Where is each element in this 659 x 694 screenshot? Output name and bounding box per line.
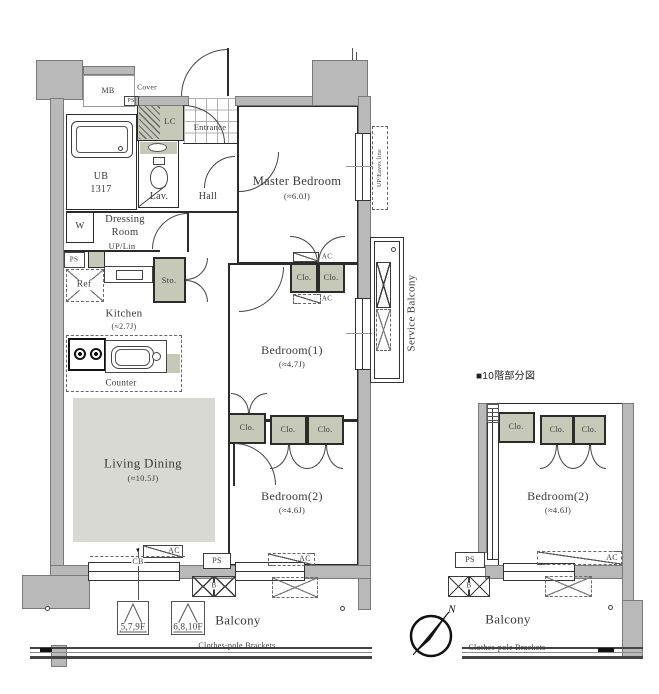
kitchen-label: Kitchen (106, 309, 143, 320)
wall-hall-bottom (66, 211, 238, 213)
partial-bedroom2-label: Bedroom(2) (527, 490, 589, 502)
closet-label: Clo. (582, 426, 597, 434)
closet-label: Clo. (324, 274, 339, 282)
entrance-door-leaf (227, 48, 229, 96)
vanity-counter (104, 266, 153, 283)
closet-label: Clo. (318, 426, 333, 434)
stove-burner (90, 348, 102, 360)
ac-label: AC (606, 554, 618, 562)
eaves-line-label: UP/Eaves line (377, 149, 383, 187)
toilet-tank (153, 157, 165, 165)
cb-marker: ▼ (135, 548, 141, 554)
service-balcony-unit-dashed (376, 309, 391, 351)
washer-label: W (75, 222, 84, 232)
ps-label: PS (212, 557, 222, 565)
window-sill-tick (346, 166, 372, 167)
roof-tick (352, 48, 353, 60)
equipment-space-dashed (272, 577, 318, 598)
service-balcony-label: Service Balcony (407, 275, 418, 352)
closet-label: Clo. (240, 424, 255, 432)
ac-label: AC (168, 547, 180, 555)
balcony-drain (340, 606, 345, 611)
stove (68, 338, 106, 371)
balcony-rail-2 (30, 652, 372, 653)
dressing-door-leaf (187, 213, 189, 249)
ac-box-bedroom1 (293, 294, 321, 304)
kitchen-sink-basin-inner (115, 349, 150, 366)
lav-door-arc (204, 156, 235, 188)
ac-label: AC (299, 555, 311, 563)
rail-tick (40, 648, 52, 652)
ub-label: UB (94, 172, 109, 182)
floor-plan: Cover MB PS LC Entrance UB 1317 Lav. Hal… (0, 0, 659, 694)
meter-box-label: MB (101, 87, 114, 95)
window-sill-tick (346, 333, 372, 334)
wall-top-left-block (36, 60, 83, 100)
refrigerator-label: Ref (76, 280, 93, 290)
pbalcony-rail-2 (462, 652, 643, 653)
pwall-left (478, 403, 487, 553)
wall-mb-top (83, 66, 135, 75)
up-lin-label: UP/Lin (109, 242, 136, 251)
ps-label: PS (465, 556, 475, 564)
wall-left (50, 98, 64, 578)
master-bedroom-label: Master Bedroom (253, 175, 342, 188)
wall-top-b (235, 96, 313, 106)
clothes-pole-label: Clothes-pole Brackets (468, 644, 545, 652)
storage-door-arc (186, 280, 208, 302)
window-bedroom1 (355, 298, 371, 370)
balcony-rail-3 (30, 656, 372, 659)
balcony-drain (608, 605, 613, 610)
rail-tick (598, 648, 614, 652)
clothes-pole-label: Clothes-pole Brackets (198, 642, 275, 650)
flue-label: B (211, 583, 218, 590)
service-balcony-unit (376, 262, 391, 308)
dressing-door-arc (152, 213, 188, 249)
flue-label: B (466, 583, 473, 590)
dressing-room-label: Dressing (105, 215, 145, 226)
storage-door-arc (186, 258, 208, 280)
balcony-drain (45, 606, 50, 611)
kitchen-sink-unit (105, 340, 167, 373)
cb-label: CB (131, 558, 144, 566)
closet-label: Clo. (509, 423, 524, 431)
bedroom1-size: (≈4.7J) (279, 360, 305, 369)
closet-label: Clo. (281, 426, 296, 434)
bedroom2-size: (≈4.6J) (279, 506, 305, 515)
storage-label: Sto. (162, 276, 177, 285)
lavatory-label: Lav. (150, 192, 169, 202)
vanity-basin (116, 270, 143, 280)
linen-closet (88, 251, 105, 268)
closet-label: Clo. (297, 274, 312, 282)
stove-burner (74, 348, 86, 360)
pwall-right (622, 403, 634, 603)
closet-label: Clo. (550, 426, 565, 434)
cover-label: Cover (137, 83, 157, 91)
pbalcony-rail-3 (462, 656, 643, 659)
bathtub (71, 121, 133, 158)
partial-bedroom2-size: (≈4.6J) (545, 506, 571, 515)
entrance-step-line (183, 143, 237, 144)
partial-hatch-ladder (487, 403, 499, 423)
wall-bottom-left-block (22, 575, 90, 609)
balcony-label: Balcony (485, 613, 530, 626)
kitchen-size-label: (≈2.7J) (112, 323, 137, 331)
entrance-door-arc (181, 49, 228, 96)
roof-tick (356, 52, 357, 60)
equipment-space-dashed-partial (545, 576, 592, 597)
bathtub-drain (118, 146, 123, 151)
lc-hatch-area (139, 105, 160, 139)
counter-label: Counter (103, 379, 138, 388)
floor-marker-2-label: 6,8,10F (173, 623, 203, 632)
living-dining-size: (≈10.5J) (128, 474, 159, 483)
bedroom2-label: Bedroom(2) (261, 490, 323, 502)
ps-top-box (124, 96, 139, 106)
floor-marker-1-label: 5,7,9F (121, 623, 146, 632)
kitchen-faucet (152, 352, 161, 361)
balcony-label: Balcony (215, 614, 260, 627)
ps-label: PS (70, 257, 78, 264)
compass-north-label: N (448, 605, 456, 616)
ac-label: AC (322, 296, 332, 303)
partial-plan-title: ■10階部分図 (476, 372, 535, 382)
lav-sink-bowl (148, 143, 167, 152)
dressing-room-label2: Room (112, 228, 139, 239)
hall-label: Hall (199, 192, 217, 202)
ub-size-label: 1317 (90, 185, 111, 195)
window-partial-left (487, 408, 499, 560)
service-balcony-drain (391, 247, 396, 252)
entrance-label: Entrance (194, 123, 227, 132)
shoe-closet-label: LC (164, 117, 175, 126)
wall-top-a (135, 96, 189, 106)
ac-label: AC (322, 254, 332, 261)
master-bedroom-size: (≈6.0J) (284, 192, 310, 201)
bedroom2-door-leaf (233, 443, 235, 486)
bedroom1-label: Bedroom(1) (261, 344, 323, 356)
living-dining-label: Living Dining (104, 457, 182, 470)
window-master (355, 133, 371, 201)
